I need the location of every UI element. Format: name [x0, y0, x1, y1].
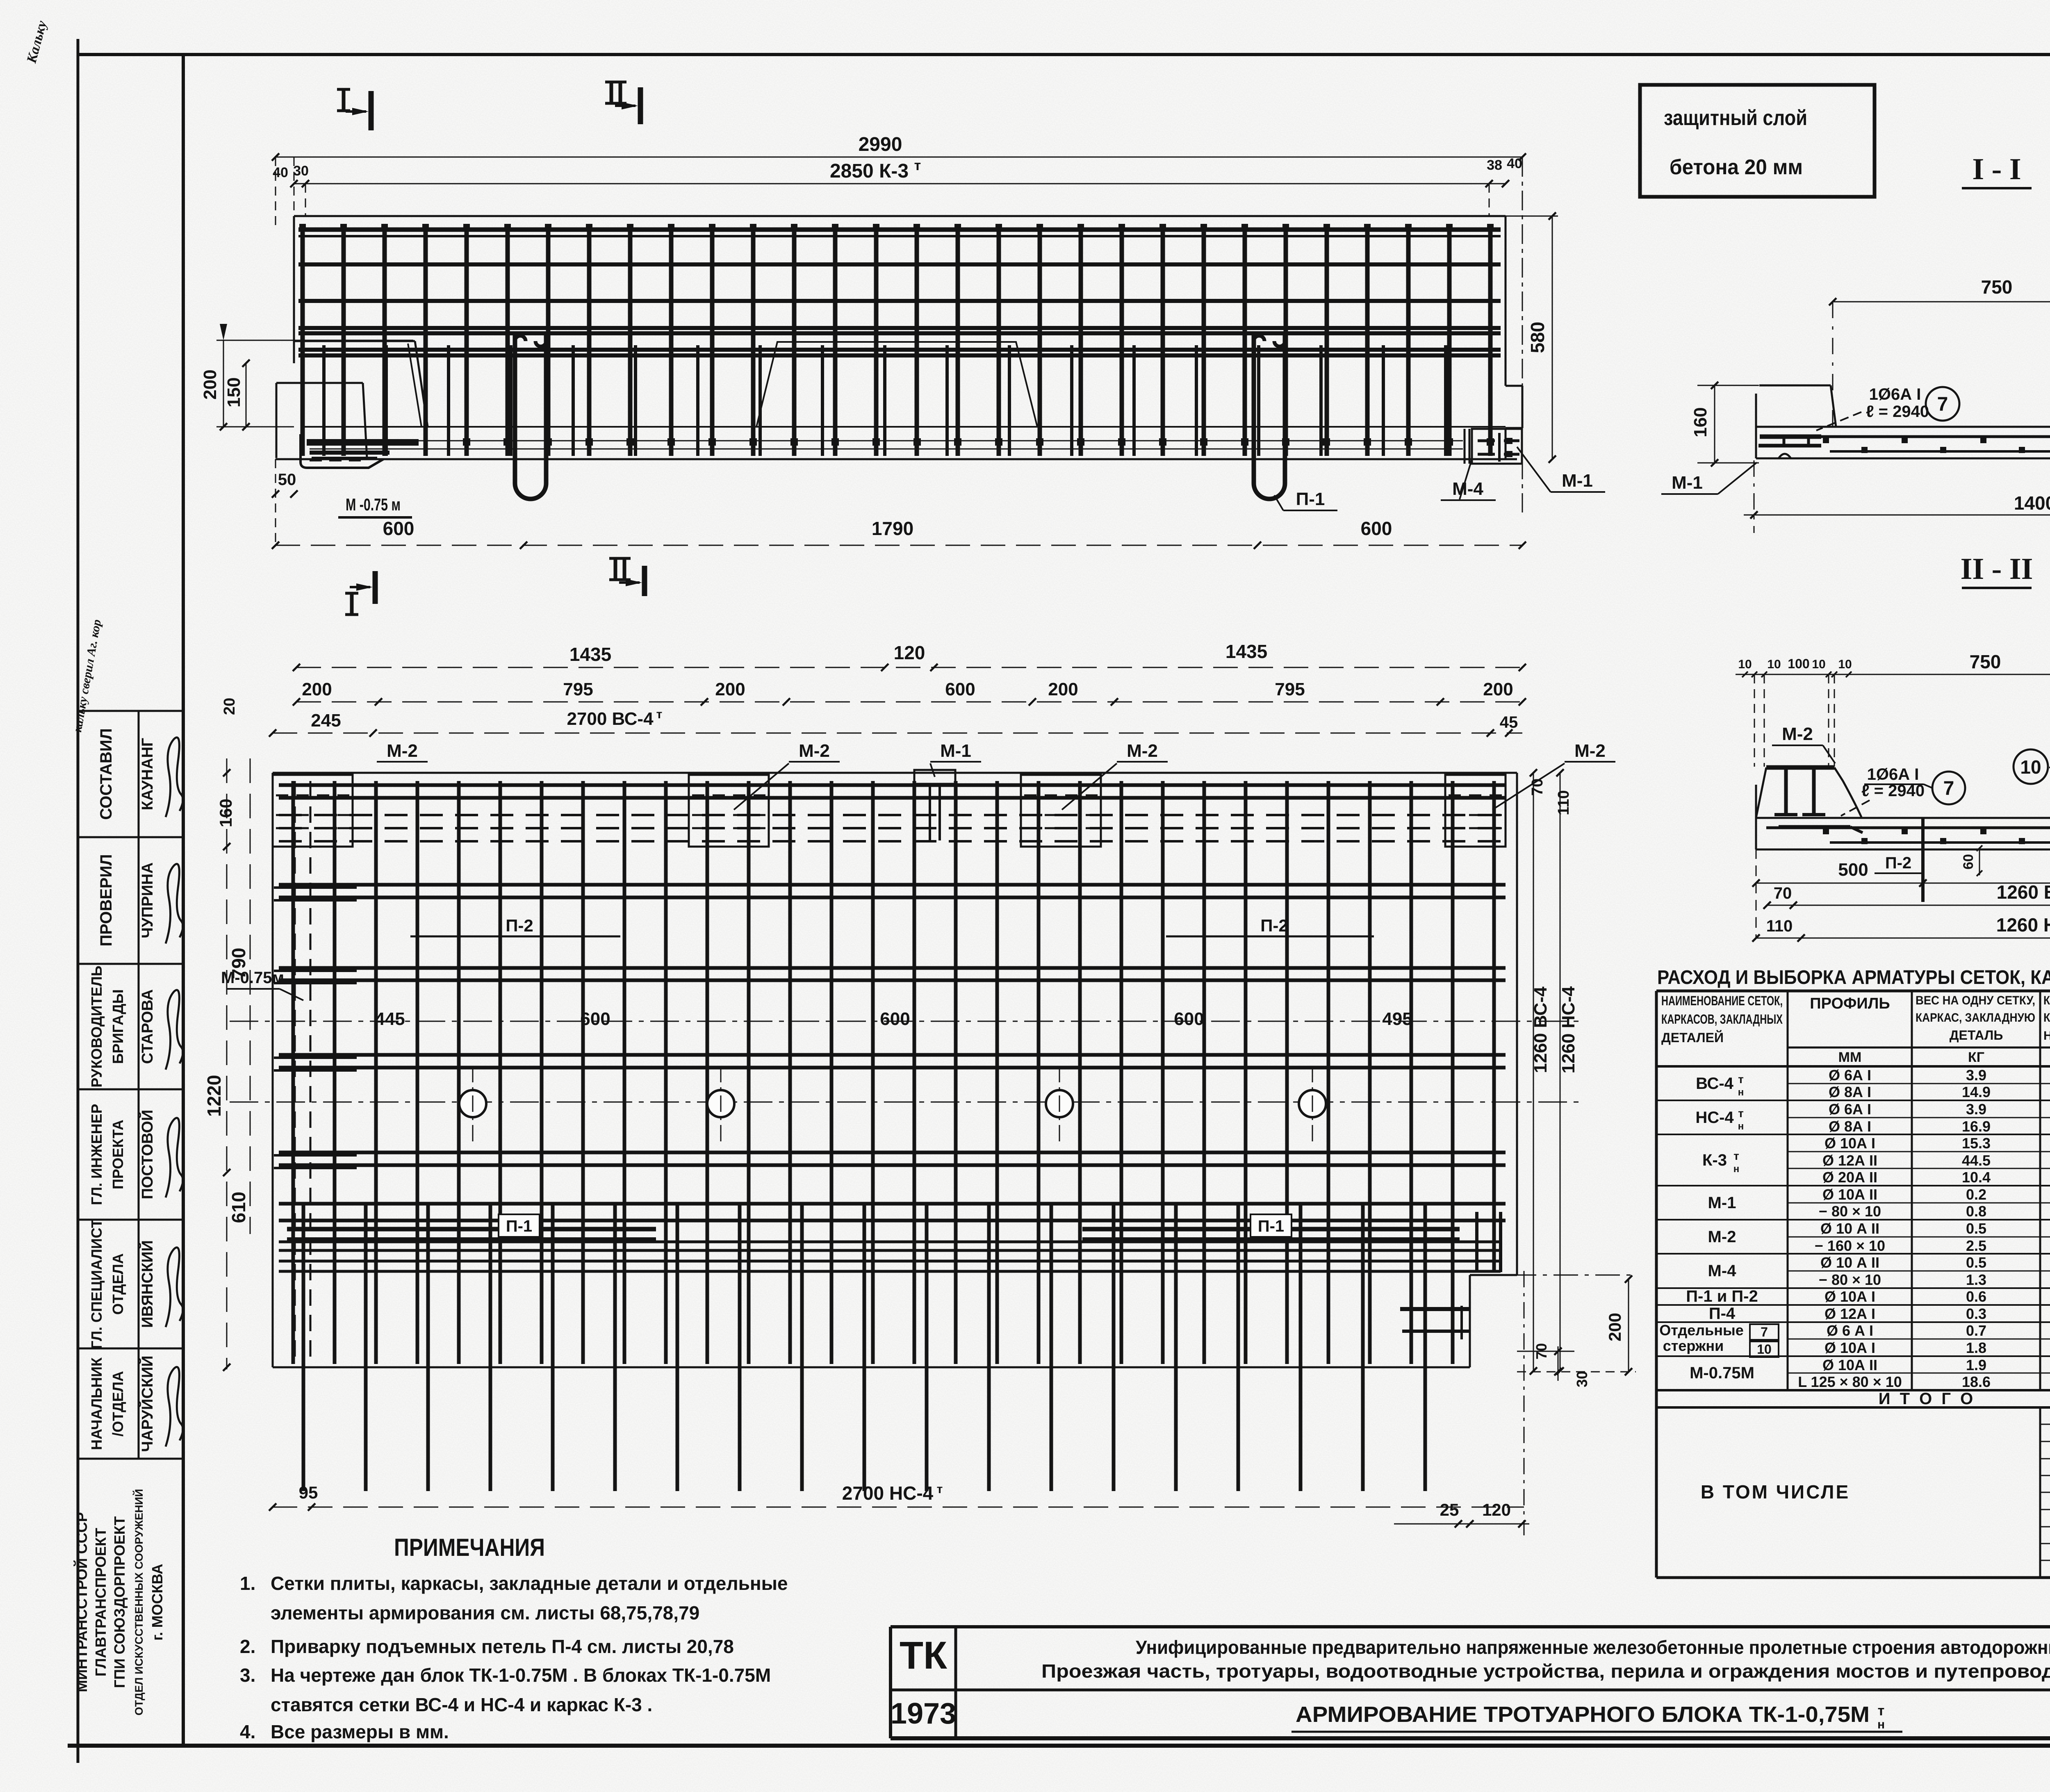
svg-text:М-2: М-2	[1127, 741, 1158, 761]
svg-text:т: т	[1733, 1150, 1739, 1162]
svg-text:КАРКАС, ЗАКЛАДНУЮ: КАРКАС, ЗАКЛАДНУЮ	[1916, 1011, 2035, 1025]
svg-text:580: 580	[1527, 322, 1548, 353]
svg-text:14.9: 14.9	[1962, 1084, 1991, 1100]
svg-text:1Ø6А I: 1Ø6А I	[1867, 765, 1919, 783]
svg-text:445: 445	[375, 1009, 405, 1029]
svg-text:100: 100	[1788, 656, 1809, 671]
svg-text:10.4: 10.4	[1962, 1169, 1991, 1186]
svg-text:М-0.75М: М-0.75М	[1690, 1364, 1754, 1382]
svg-text:М-2: М-2	[799, 741, 830, 761]
svg-text:Ø 10А II: Ø 10А II	[1822, 1357, 1877, 1373]
svg-text:600: 600	[1174, 1009, 1204, 1029]
svg-text:н: н	[1738, 1087, 1744, 1098]
svg-text:600: 600	[383, 518, 415, 539]
svg-text:ОТДЕЛА: ОТДЕЛА	[109, 1253, 126, 1315]
svg-text:Ø 6 А I: Ø 6 А I	[1827, 1322, 1873, 1339]
svg-text:М -0.75 м: М -0.75 м	[346, 495, 401, 514]
svg-text:элементы армирования см. ли: элементы армирования см. листы 68,75,78,…	[271, 1602, 699, 1624]
svg-text:П-2: П-2	[1260, 916, 1288, 935]
svg-text:7: 7	[1937, 394, 1948, 415]
svg-text:2.: 2.	[240, 1636, 255, 1657]
svg-text:ЧУПРИНА: ЧУПРИНА	[139, 862, 156, 938]
svg-text:НАЧАЛЬНИК: НАЧАЛЬНИК	[88, 1357, 105, 1450]
svg-text:I - I: I - I	[1972, 153, 2021, 186]
svg-text:3.: 3.	[240, 1664, 255, 1686]
svg-text:ГЛАВТРАНСПРОЕКТ: ГЛАВТРАНСПРОЕКТ	[92, 1528, 109, 1677]
svg-text:70: 70	[1774, 884, 1792, 902]
svg-text:200: 200	[302, 679, 332, 699]
svg-text:М-2: М-2	[1574, 741, 1606, 761]
svg-text:т: т	[914, 158, 921, 173]
svg-text:Ø 12А I: Ø 12А I	[1824, 1305, 1875, 1322]
svg-text:н: н	[1733, 1164, 1740, 1175]
svg-text:750: 750	[1970, 651, 2001, 672]
svg-text:70: 70	[1529, 779, 1546, 796]
svg-text:200: 200	[1605, 1313, 1624, 1341]
svg-text:600: 600	[945, 679, 975, 699]
svg-text:245: 245	[311, 710, 341, 731]
svg-text:ДЕТАЛЬ: ДЕТАЛЬ	[1950, 1028, 2003, 1043]
svg-text:На чертеже дан блок ТК-1-0.7: На чертеже дан блок ТК-1-0.75М . В блока…	[271, 1664, 771, 1686]
svg-text:П-1: П-1	[1258, 1217, 1284, 1235]
svg-text:750: 750	[1981, 276, 2013, 298]
svg-text:н: н	[1738, 1121, 1744, 1132]
svg-text:0.6: 0.6	[1966, 1288, 1986, 1305]
svg-text:бетона 20 мм: бетона 20 мм	[1670, 155, 1803, 179]
svg-text:600: 600	[580, 1009, 610, 1029]
svg-text:Проезжая часть, тротуары, водо: Проезжая часть, тротуары, водоотводные у…	[1041, 1660, 2050, 1682]
svg-text:1Ø6А I: 1Ø6А I	[1869, 385, 1921, 403]
svg-text:АРМИРОВАНИЕ ТРОТУАРНОГО БЛ: АРМИРОВАНИЕ ТРОТУАРНОГО БЛОКА ТК-1-0,75М	[1296, 1702, 1870, 1727]
svg-text:795: 795	[563, 679, 593, 699]
svg-text:160: 160	[216, 799, 235, 827]
svg-text:Ø 10А I: Ø 10А I	[1824, 1288, 1875, 1305]
svg-text:II - II: II - II	[1961, 552, 2033, 586]
svg-text:110: 110	[1555, 790, 1572, 815]
svg-text:500: 500	[1838, 860, 1868, 880]
svg-text:− 80 × 10: − 80 × 10	[1819, 1271, 1881, 1288]
svg-text:2990: 2990	[859, 134, 902, 155]
svg-text:− 80 × 10: − 80 × 10	[1819, 1203, 1881, 1220]
svg-text:Ø 6А I: Ø 6А I	[1829, 1101, 1871, 1118]
svg-text:ПРОФИЛЬ: ПРОФИЛЬ	[1810, 995, 1890, 1012]
svg-text:1260 ВС-4: 1260 ВС-4	[1531, 986, 1551, 1073]
svg-text:МИНТРАНССТРОЙ СССР: МИНТРАНССТРОЙ СССР	[73, 1512, 90, 1692]
svg-text:т: т	[1738, 1107, 1744, 1120]
svg-text:ПРИМЕЧАНИЯ: ПРИМЕЧАНИЯ	[394, 1534, 545, 1561]
svg-text:НЫХ ДЕТАЛЕЙ: НЫХ ДЕТАЛЕЙ	[2043, 1029, 2050, 1043]
svg-text:М-0.75м: М-0.75м	[221, 969, 284, 987]
svg-text:ℓ = 2940: ℓ = 2940	[1866, 403, 1929, 421]
svg-text:ММ: ММ	[1838, 1050, 1862, 1065]
svg-text:30: 30	[1574, 1371, 1590, 1387]
svg-text:0.3: 0.3	[1966, 1305, 1986, 1322]
svg-text:− 160 × 10: − 160 × 10	[1815, 1237, 1885, 1254]
svg-text:ГЛ. ИНЖЕНЕР: ГЛ. ИНЖЕНЕР	[88, 1104, 105, 1205]
svg-text:0.8: 0.8	[1966, 1203, 1986, 1220]
svg-text:10: 10	[1767, 658, 1781, 671]
svg-text:25: 25	[1440, 1500, 1459, 1519]
svg-text:15.3: 15.3	[1962, 1135, 1991, 1152]
svg-text:2700 ВС-4: 2700 ВС-4	[567, 709, 654, 729]
svg-text:ОТДЕЛ ИСКУССТВЕННЫХ СООРУЖЕНИЙ: ОТДЕЛ ИСКУССТВЕННЫХ СООРУЖЕНИЙ	[132, 1489, 145, 1716]
svg-text:Все размеры в мм.: Все размеры в мм.	[271, 1721, 449, 1742]
svg-text:20: 20	[221, 698, 238, 715]
svg-text:1260 ВС-4: 1260 ВС-4	[1997, 881, 2050, 903]
svg-text:L 125 × 80 × 10: L 125 × 80 × 10	[1798, 1373, 1902, 1390]
svg-text:ГПИ СОЮЗДОРПРОЕКТ: ГПИ СОЮЗДОРПРОЕКТ	[111, 1516, 128, 1688]
svg-text:И Т О Г О: И Т О Г О	[1879, 1390, 1976, 1408]
svg-text:Ø 10 А II: Ø 10 А II	[1820, 1254, 1879, 1271]
svg-text:0.7: 0.7	[1966, 1322, 1986, 1339]
svg-text:7: 7	[1761, 1325, 1768, 1339]
svg-text:4.: 4.	[240, 1721, 255, 1742]
svg-text:РАСХОД И ВЫБОРКА АРМАТУРЫ СЕТО: РАСХОД И ВЫБОРКА АРМАТУРЫ СЕТОК, КАРКАСО…	[1657, 966, 2050, 988]
svg-text:ТК: ТК	[900, 1634, 948, 1677]
svg-text:495: 495	[1382, 1009, 1412, 1029]
svg-text:1260 НС-4: 1260 НС-4	[1558, 986, 1578, 1073]
svg-text:Ø 10А II: Ø 10А II	[1822, 1186, 1877, 1203]
svg-text:1400: 1400	[2014, 492, 2050, 514]
svg-text:стержни: стержни	[1663, 1337, 1724, 1354]
svg-text:защитный слой: защитный слой	[1664, 106, 1807, 130]
svg-text:М-1: М-1	[1708, 1194, 1736, 1212]
svg-text:Ø 10 А II: Ø 10 А II	[1820, 1220, 1879, 1237]
svg-text:Ø 10А I: Ø 10А I	[1824, 1135, 1875, 1152]
svg-text:Приварку подъемных петель: Приварку подъемных петель П-4 см. листы …	[271, 1636, 734, 1657]
svg-text:1.: 1.	[240, 1573, 255, 1594]
svg-text:М-4: М-4	[1452, 479, 1483, 499]
svg-text:КАРКАСОВ, ЗАКЛАДНЫХ: КАРКАСОВ, ЗАКЛАДНЫХ	[1661, 1012, 1783, 1027]
svg-text:600: 600	[1361, 518, 1392, 539]
svg-text:Ø 6А I: Ø 6А I	[1829, 1067, 1871, 1084]
svg-text:40: 40	[1507, 156, 1522, 171]
svg-text:2850 К-3: 2850 К-3	[830, 160, 909, 182]
svg-text:600: 600	[880, 1009, 910, 1029]
svg-text:ставятся сетки ВС-4 и Н: ставятся сетки ВС-4 и НС-4 и каркас К-3 …	[271, 1694, 652, 1715]
svg-text:120: 120	[894, 642, 925, 663]
svg-text:Ø 10А I: Ø 10А I	[1824, 1339, 1875, 1356]
svg-text:М-1: М-1	[1562, 471, 1593, 491]
svg-text:П-2: П-2	[506, 916, 533, 935]
svg-text:Унифицированные предварительн: Унифицированные предварительно напряженн…	[1136, 1637, 2050, 1658]
svg-text:КОЛИЧЕСТВО СЕТОК,: КОЛИЧЕСТВО СЕТОК,	[2043, 994, 2050, 1007]
svg-text:1790: 1790	[872, 518, 913, 539]
svg-text:Ø 8А I: Ø 8А I	[1829, 1118, 1871, 1135]
svg-text:1.9: 1.9	[1966, 1357, 1986, 1373]
svg-text:45: 45	[1500, 713, 1518, 731]
svg-text:10: 10	[1812, 658, 1825, 671]
svg-text:КАУНАНГ: КАУНАНГ	[139, 738, 156, 811]
svg-text:200: 200	[1048, 679, 1078, 699]
svg-text:М-1: М-1	[940, 741, 971, 761]
svg-text:10: 10	[1838, 658, 1852, 671]
svg-text:т: т	[1738, 1073, 1744, 1086]
svg-text:0.5: 0.5	[1966, 1220, 1986, 1237]
svg-text:160: 160	[1690, 407, 1711, 437]
svg-text:18.6: 18.6	[1962, 1373, 1991, 1390]
svg-text:2700 НС-4: 2700 НС-4	[842, 1482, 934, 1504]
svg-text:Ø 8А I: Ø 8А I	[1829, 1084, 1871, 1100]
svg-text:Ø 20А II: Ø 20А II	[1822, 1169, 1877, 1186]
svg-text:ВС-4: ВС-4	[1696, 1075, 1734, 1093]
svg-text:1973: 1973	[891, 1697, 956, 1730]
svg-text:К-3: К-3	[1702, 1151, 1727, 1169]
svg-text:1435: 1435	[1225, 641, 1267, 662]
svg-text:110: 110	[1766, 917, 1793, 935]
svg-text:3.9: 3.9	[1966, 1067, 1986, 1084]
svg-text:1220: 1220	[203, 1075, 225, 1117]
svg-text:ДЕТАЛЕЙ: ДЕТАЛЕЙ	[1661, 1030, 1724, 1045]
svg-text:ПОСТОВОЙ: ПОСТОВОЙ	[138, 1110, 156, 1200]
svg-text:В ТОМ ЧИСЛЕ: В ТОМ ЧИСЛЕ	[1701, 1481, 1850, 1503]
svg-text:НАИМЕНОВАНИЕ СЕТОК,: НАИМЕНОВАНИЕ СЕТОК,	[1661, 993, 1783, 1008]
svg-text:95: 95	[299, 1483, 318, 1502]
svg-text:200: 200	[715, 679, 745, 699]
svg-text:795: 795	[1275, 679, 1305, 699]
svg-text:н: н	[1877, 1718, 1885, 1731]
svg-text:СТАРОВА: СТАРОВА	[139, 989, 156, 1064]
svg-text:М-1: М-1	[1672, 473, 1703, 493]
svg-text:П-1: П-1	[1296, 489, 1325, 509]
svg-text:П-1: П-1	[506, 1217, 532, 1235]
svg-text:10: 10	[2020, 756, 2041, 778]
svg-text:т: т	[937, 1482, 943, 1496]
svg-text:ПРОВЕРИЛ: ПРОВЕРИЛ	[97, 854, 115, 946]
svg-text:44.5: 44.5	[1962, 1152, 1991, 1169]
svg-text:38: 38	[1487, 157, 1502, 173]
svg-text:0.2: 0.2	[1966, 1186, 1986, 1203]
svg-text:120: 120	[1482, 1500, 1511, 1519]
svg-text:БРИГАДЫ: БРИГАДЫ	[109, 989, 126, 1064]
svg-text:ИВЯНСКИЙ: ИВЯНСКИЙ	[138, 1240, 156, 1328]
svg-text:М-2: М-2	[1782, 724, 1813, 744]
svg-text:М-2: М-2	[1708, 1228, 1736, 1246]
svg-text:0.5: 0.5	[1966, 1254, 1986, 1271]
svg-text:10: 10	[1738, 658, 1752, 671]
svg-text:т: т	[656, 708, 663, 721]
svg-text:16.9: 16.9	[1962, 1118, 1991, 1135]
svg-text:3.9: 3.9	[1966, 1101, 1986, 1118]
svg-text:т: т	[1878, 1703, 1885, 1719]
svg-text:П-4: П-4	[1709, 1305, 1736, 1323]
svg-text:150: 150	[224, 377, 244, 407]
svg-text:Отдельные: Отдельные	[1659, 1322, 1744, 1339]
svg-text:Ø 12А II: Ø 12А II	[1822, 1152, 1877, 1169]
svg-text:1435: 1435	[569, 644, 611, 665]
svg-text:1260 НС-4: 1260 НС-4	[1996, 914, 2050, 936]
svg-text:ПРОЕКТА: ПРОЕКТА	[109, 1120, 126, 1189]
svg-text:П-2: П-2	[1885, 854, 1911, 872]
svg-text:1.8: 1.8	[1966, 1339, 1986, 1356]
svg-text:60: 60	[1961, 854, 1976, 870]
svg-text:КАРКАСОВ, ЗАКЛАД-: КАРКАСОВ, ЗАКЛАД-	[2043, 1011, 2050, 1025]
svg-text:РУКОВОДИТЕЛЬ: РУКОВОДИТЕЛЬ	[88, 965, 105, 1087]
svg-text:Сетки плиты, каркасы, заклад: Сетки плиты, каркасы, закладные детали и…	[271, 1573, 788, 1594]
svg-text:200: 200	[1483, 679, 1513, 699]
svg-text:7: 7	[1943, 778, 1954, 799]
svg-text:ГЛ. СПЕЦИАЛИСТ: ГЛ. СПЕЦИАЛИСТ	[88, 1219, 105, 1349]
svg-text:200: 200	[200, 369, 220, 399]
svg-text:П-1 и П-2: П-1 и П-2	[1686, 1287, 1758, 1305]
svg-text:610: 610	[228, 1192, 249, 1223]
svg-text:10: 10	[1757, 1342, 1772, 1357]
svg-text:М-2: М-2	[387, 741, 418, 761]
svg-text:/ОТДЕЛА: /ОТДЕЛА	[109, 1371, 126, 1437]
svg-text:КГ: КГ	[1968, 1050, 1984, 1065]
svg-text:1.3: 1.3	[1966, 1271, 1986, 1288]
svg-text:СОСТАВИЛ: СОСТАВИЛ	[97, 728, 115, 820]
svg-text:ЧАРУЙСКИЙ: ЧАРУЙСКИЙ	[138, 1355, 156, 1452]
svg-text:2.5: 2.5	[1966, 1237, 1986, 1254]
svg-text:50: 50	[278, 471, 296, 489]
svg-text:30: 30	[293, 163, 309, 179]
svg-text:М-4: М-4	[1708, 1262, 1737, 1280]
svg-text:НС-4: НС-4	[1695, 1109, 1734, 1127]
svg-text:г. МОСКВА: г. МОСКВА	[149, 1564, 166, 1641]
svg-text:ВЕС НА ОДНУ СЕТКУ,: ВЕС НА ОДНУ СЕТКУ,	[1916, 994, 2035, 1007]
